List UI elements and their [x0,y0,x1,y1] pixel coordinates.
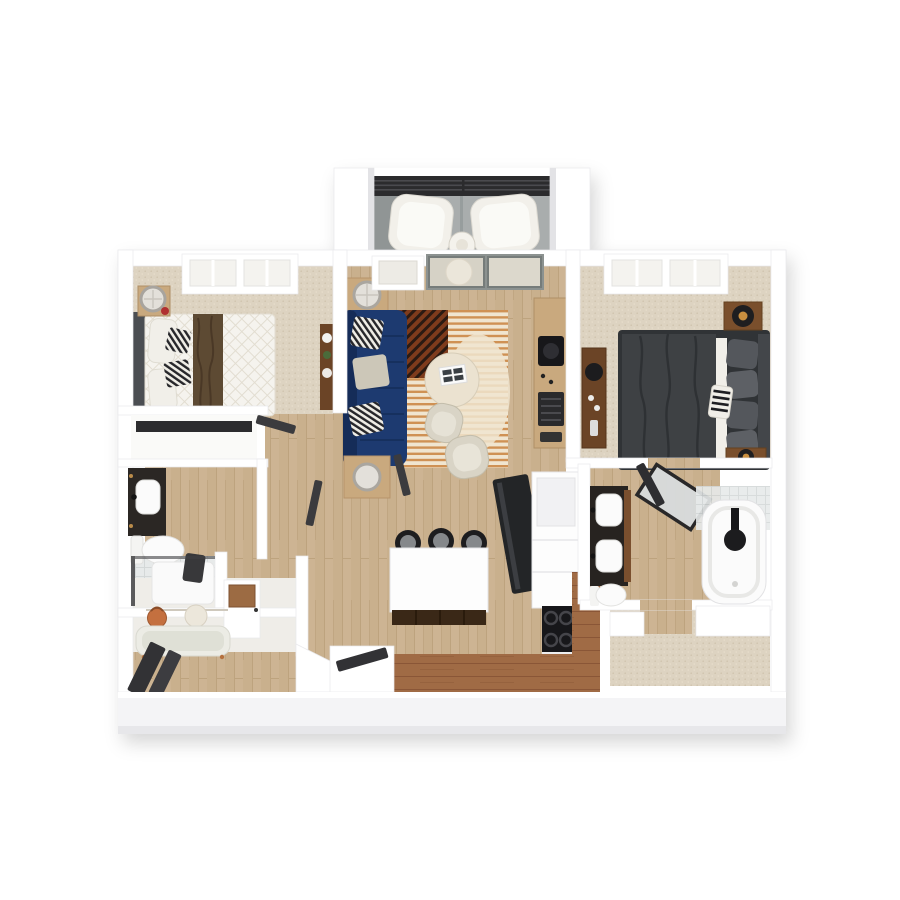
flower-pot [161,307,169,315]
chevron-pillow [165,327,192,354]
floorplan-render [0,0,900,900]
lounge-chair [387,193,455,256]
sink [596,540,622,572]
sliding-glass-door [426,254,544,290]
nightstand-left [138,286,170,316]
bottom-fascia [118,692,786,734]
pendant-light [446,259,472,285]
toilet [590,584,626,606]
vanity-sink [128,468,166,536]
toilet [131,536,184,564]
navy-sofa [343,310,407,466]
windows [182,254,728,294]
decor-bottle [590,420,598,436]
faucet [131,494,137,500]
entry-door-niche [330,646,394,692]
striped-accent-pillow [708,385,733,420]
wood-cabinet-top [229,585,255,607]
gray-pillow [352,354,390,390]
wall-living-bedroomR [566,250,580,462]
coffee-table-book [439,364,467,385]
wall-bedroomL-south [118,406,268,415]
decor-hat [585,363,603,381]
plant [323,351,331,359]
kitchen-island [390,528,488,625]
dishwasher [537,478,575,526]
column-shade [368,168,374,256]
balcony-railing [366,176,560,196]
storage-cabinet [224,580,260,638]
side-table-bottom [344,456,390,498]
l-counter-horizontal [386,654,600,692]
window-bedroom-left [182,254,298,294]
island-countertop [390,548,488,612]
range-stove [542,606,576,659]
wall-kitchen-bathR [578,464,590,604]
round-coffee-table [425,353,479,407]
closet-rod-shelf [136,421,252,432]
lounge-chair [469,193,541,257]
window-bedroom-right [604,254,728,294]
throw-blanket [193,314,223,416]
sink [596,494,622,526]
media-console [534,298,568,448]
decor-round [322,368,332,378]
chevron-pillow [163,359,192,388]
closet-shelf-white [696,606,770,636]
queen-bed-white [133,312,275,416]
doorway-closet [640,600,692,610]
chevron-pillow [350,316,385,351]
floorplan-canvas [0,0,900,900]
decor-round [322,333,332,343]
dresser-left-wall [582,348,606,448]
nightstand-top [724,302,762,330]
window-living [372,256,424,290]
pillow [725,338,759,370]
glass-frame [135,556,215,559]
wall-east [771,250,786,692]
wall-bathL-hall [257,459,267,559]
headboard [758,334,770,466]
faucet [590,553,595,558]
double-vanity [590,486,631,586]
table-lamp [354,464,380,490]
column-shade [550,168,556,256]
closet-shelf-white [610,612,644,636]
headboard [133,312,145,416]
hanging-hat [185,605,207,627]
faucet [590,507,595,512]
wall-bedroomL-living [333,250,347,413]
island-base-cabinets [392,610,486,625]
bathtub [702,500,766,604]
wall-mudroom-east [296,556,308,656]
balcony [334,168,590,258]
glass-frame [131,556,135,606]
wall-closet-south [118,459,268,467]
